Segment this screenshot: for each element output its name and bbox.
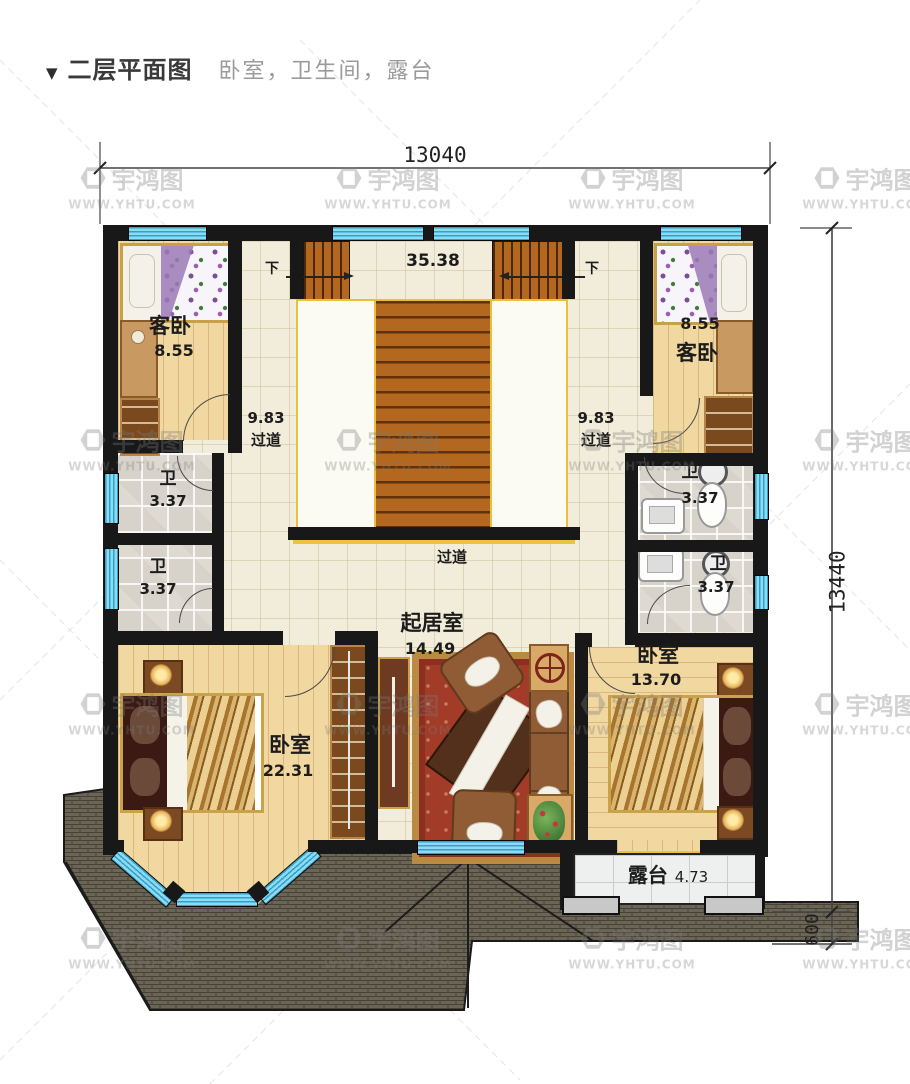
dim-terrace-depth: 600 [802, 913, 823, 946]
armchair-top-cushion [460, 651, 505, 692]
stair-pier-right [562, 241, 575, 299]
label-bathrb-area: 3.37 [697, 579, 734, 596]
label-living-area: 14.49 [405, 640, 456, 658]
dim-overall-width: 13040 [403, 143, 466, 167]
potted-plant [533, 801, 565, 843]
side-table-compass [529, 644, 569, 692]
label-corridorleft-name: 过道 [251, 432, 281, 449]
guest-left-bed-mattress [129, 254, 155, 308]
label-bath1b-area: 3.37 [139, 581, 176, 598]
bedright-lamp-bottom [722, 809, 744, 831]
bedright-pillow-1 [723, 707, 751, 745]
window-right-bath-lower [754, 575, 769, 610]
label-terrace-name: 露台 [628, 863, 668, 887]
stair-run-left [303, 241, 350, 301]
label-guestright-area: 8.55 [680, 315, 719, 333]
guest-left-bed [120, 243, 232, 323]
wall-guestright-left [640, 241, 653, 396]
sink-lower [638, 548, 684, 582]
guest-left-desk-stool [131, 330, 145, 344]
bedright-pillow-2 [723, 758, 751, 796]
label-bathlt-name: 卫 [160, 470, 177, 489]
label-bathrt-area: 3.37 [681, 490, 718, 507]
wall-bedleft-top-a [103, 631, 283, 645]
bedleft-tiger-blanket [187, 696, 255, 810]
window-top-stair-left [332, 226, 424, 241]
bedleft-headboard [123, 696, 167, 810]
down-arrow-head-left [344, 272, 354, 280]
stair-landing-left [296, 299, 376, 531]
living-cabinet-handle [392, 677, 395, 787]
label-stairwell-area: 35.38 [406, 252, 460, 271]
label-hallway: 过道 [437, 549, 467, 566]
stairwell-bottom-wall [288, 527, 580, 540]
bedleft-pillow-2 [130, 758, 160, 796]
wall-bedleft-right [365, 631, 378, 852]
sink-basin-upper [649, 506, 675, 524]
window-top-stair-right [433, 226, 530, 241]
window-top-guestleft [128, 226, 207, 241]
stair-pier-left [290, 241, 303, 299]
bedroom-left-bed [120, 693, 264, 813]
bedright-headboard [719, 698, 755, 810]
stairwell-sill [293, 540, 575, 544]
label-corridorleft-area: 9.83 [247, 410, 284, 427]
stair-landing-right [490, 299, 568, 531]
label-bathlt-area: 3.37 [149, 493, 186, 510]
window-top-guestright [660, 226, 742, 241]
guest-right-bed-mattress [721, 254, 747, 312]
label-bathrt-name: 卫 [682, 463, 699, 482]
wall-right [753, 225, 768, 857]
bedleft-lamp-bottom [150, 810, 172, 832]
sink-basin-lower [647, 555, 673, 573]
label-bathrb-name: 卫 [710, 555, 727, 574]
window-left-bath-lower [104, 548, 119, 610]
bedleft-lamp-top [150, 664, 172, 686]
guest-right-bed-throw [657, 246, 717, 322]
bedroom-left-wardrobe [330, 645, 370, 839]
plan-title: 二层平面图 [68, 50, 193, 85]
label-guestleft-name: 客卧 [149, 315, 191, 339]
bedright-sheet-fold [703, 698, 720, 810]
wardrobe-rail [348, 651, 350, 829]
page-title: ▼ 二层平面图 卧室，卫生间，露台 [46, 50, 435, 85]
sink-upper [641, 498, 685, 534]
wall-bottom-b [315, 840, 417, 853]
label-corridorright-area: 9.83 [577, 410, 614, 427]
floorplan-page: ▼ 二层平面图 卧室，卫生间，露台 [0, 0, 910, 1084]
label-bedleft-area: 22.31 [263, 762, 314, 780]
label-down-right: 下 [585, 262, 599, 278]
compass-ornament [535, 653, 565, 683]
bay-window-center [176, 892, 258, 907]
stair-run-right [492, 241, 564, 301]
window-left-bath-upper [104, 473, 119, 524]
title-marker-icon: ▼ [46, 64, 58, 82]
wall-bathright-mid [625, 540, 753, 552]
guest-left-bed-blanket [161, 246, 229, 320]
bedright-lamp-top [722, 667, 744, 689]
window-right-bath-upper [754, 473, 769, 520]
label-bedleft-name: 卧室 [269, 734, 311, 758]
guest-right-vanity [716, 320, 754, 394]
label-guestright-name: 客卧 [676, 342, 718, 366]
down-arrow-head-right [499, 272, 509, 280]
wall-guestleft-bottom [103, 440, 183, 453]
dim-overall-height: 13440 [826, 550, 850, 613]
label-down-left: 下 [265, 262, 279, 278]
label-bedright-name: 卧室 [637, 644, 679, 668]
bay-corner-a [112, 840, 124, 852]
bedright-tiger-blanket [611, 698, 703, 810]
wall-guestleft-corridor [228, 241, 242, 453]
plan-subtitle: 卧室，卫生间，露台 [219, 53, 435, 85]
guest-right-bed [654, 243, 756, 325]
guest-right-bed-blanket [657, 246, 717, 322]
sofa-pillow-1 [533, 698, 564, 731]
bedleft-sheet-fold [167, 696, 188, 810]
bedleft-pillow-1 [130, 706, 160, 744]
label-terrace-area: 4.73 [675, 868, 708, 886]
wall-bedright-left [575, 633, 588, 852]
bay-corner-d [308, 840, 320, 852]
label-guestleft-area: 8.55 [154, 342, 193, 360]
guest-left-bed-throw [161, 246, 229, 320]
label-corridorright-name: 过道 [581, 432, 611, 449]
window-living-bottom [417, 840, 525, 855]
wall-bathleft-right [212, 453, 224, 643]
label-living-name: 起居室 [401, 612, 464, 636]
label-bathlb-name: 卫 [150, 558, 167, 577]
terrace-rail-left [562, 896, 620, 915]
stair-main-flight [374, 299, 492, 531]
bedroom-right-bed [608, 695, 758, 813]
label-bedright-area: 13.70 [631, 671, 682, 689]
living-cabinet [378, 657, 410, 809]
wall-bathleft-mid [103, 533, 224, 545]
terrace-rail-right [704, 896, 764, 915]
label-terrace: 露台 4.73 [628, 864, 708, 886]
